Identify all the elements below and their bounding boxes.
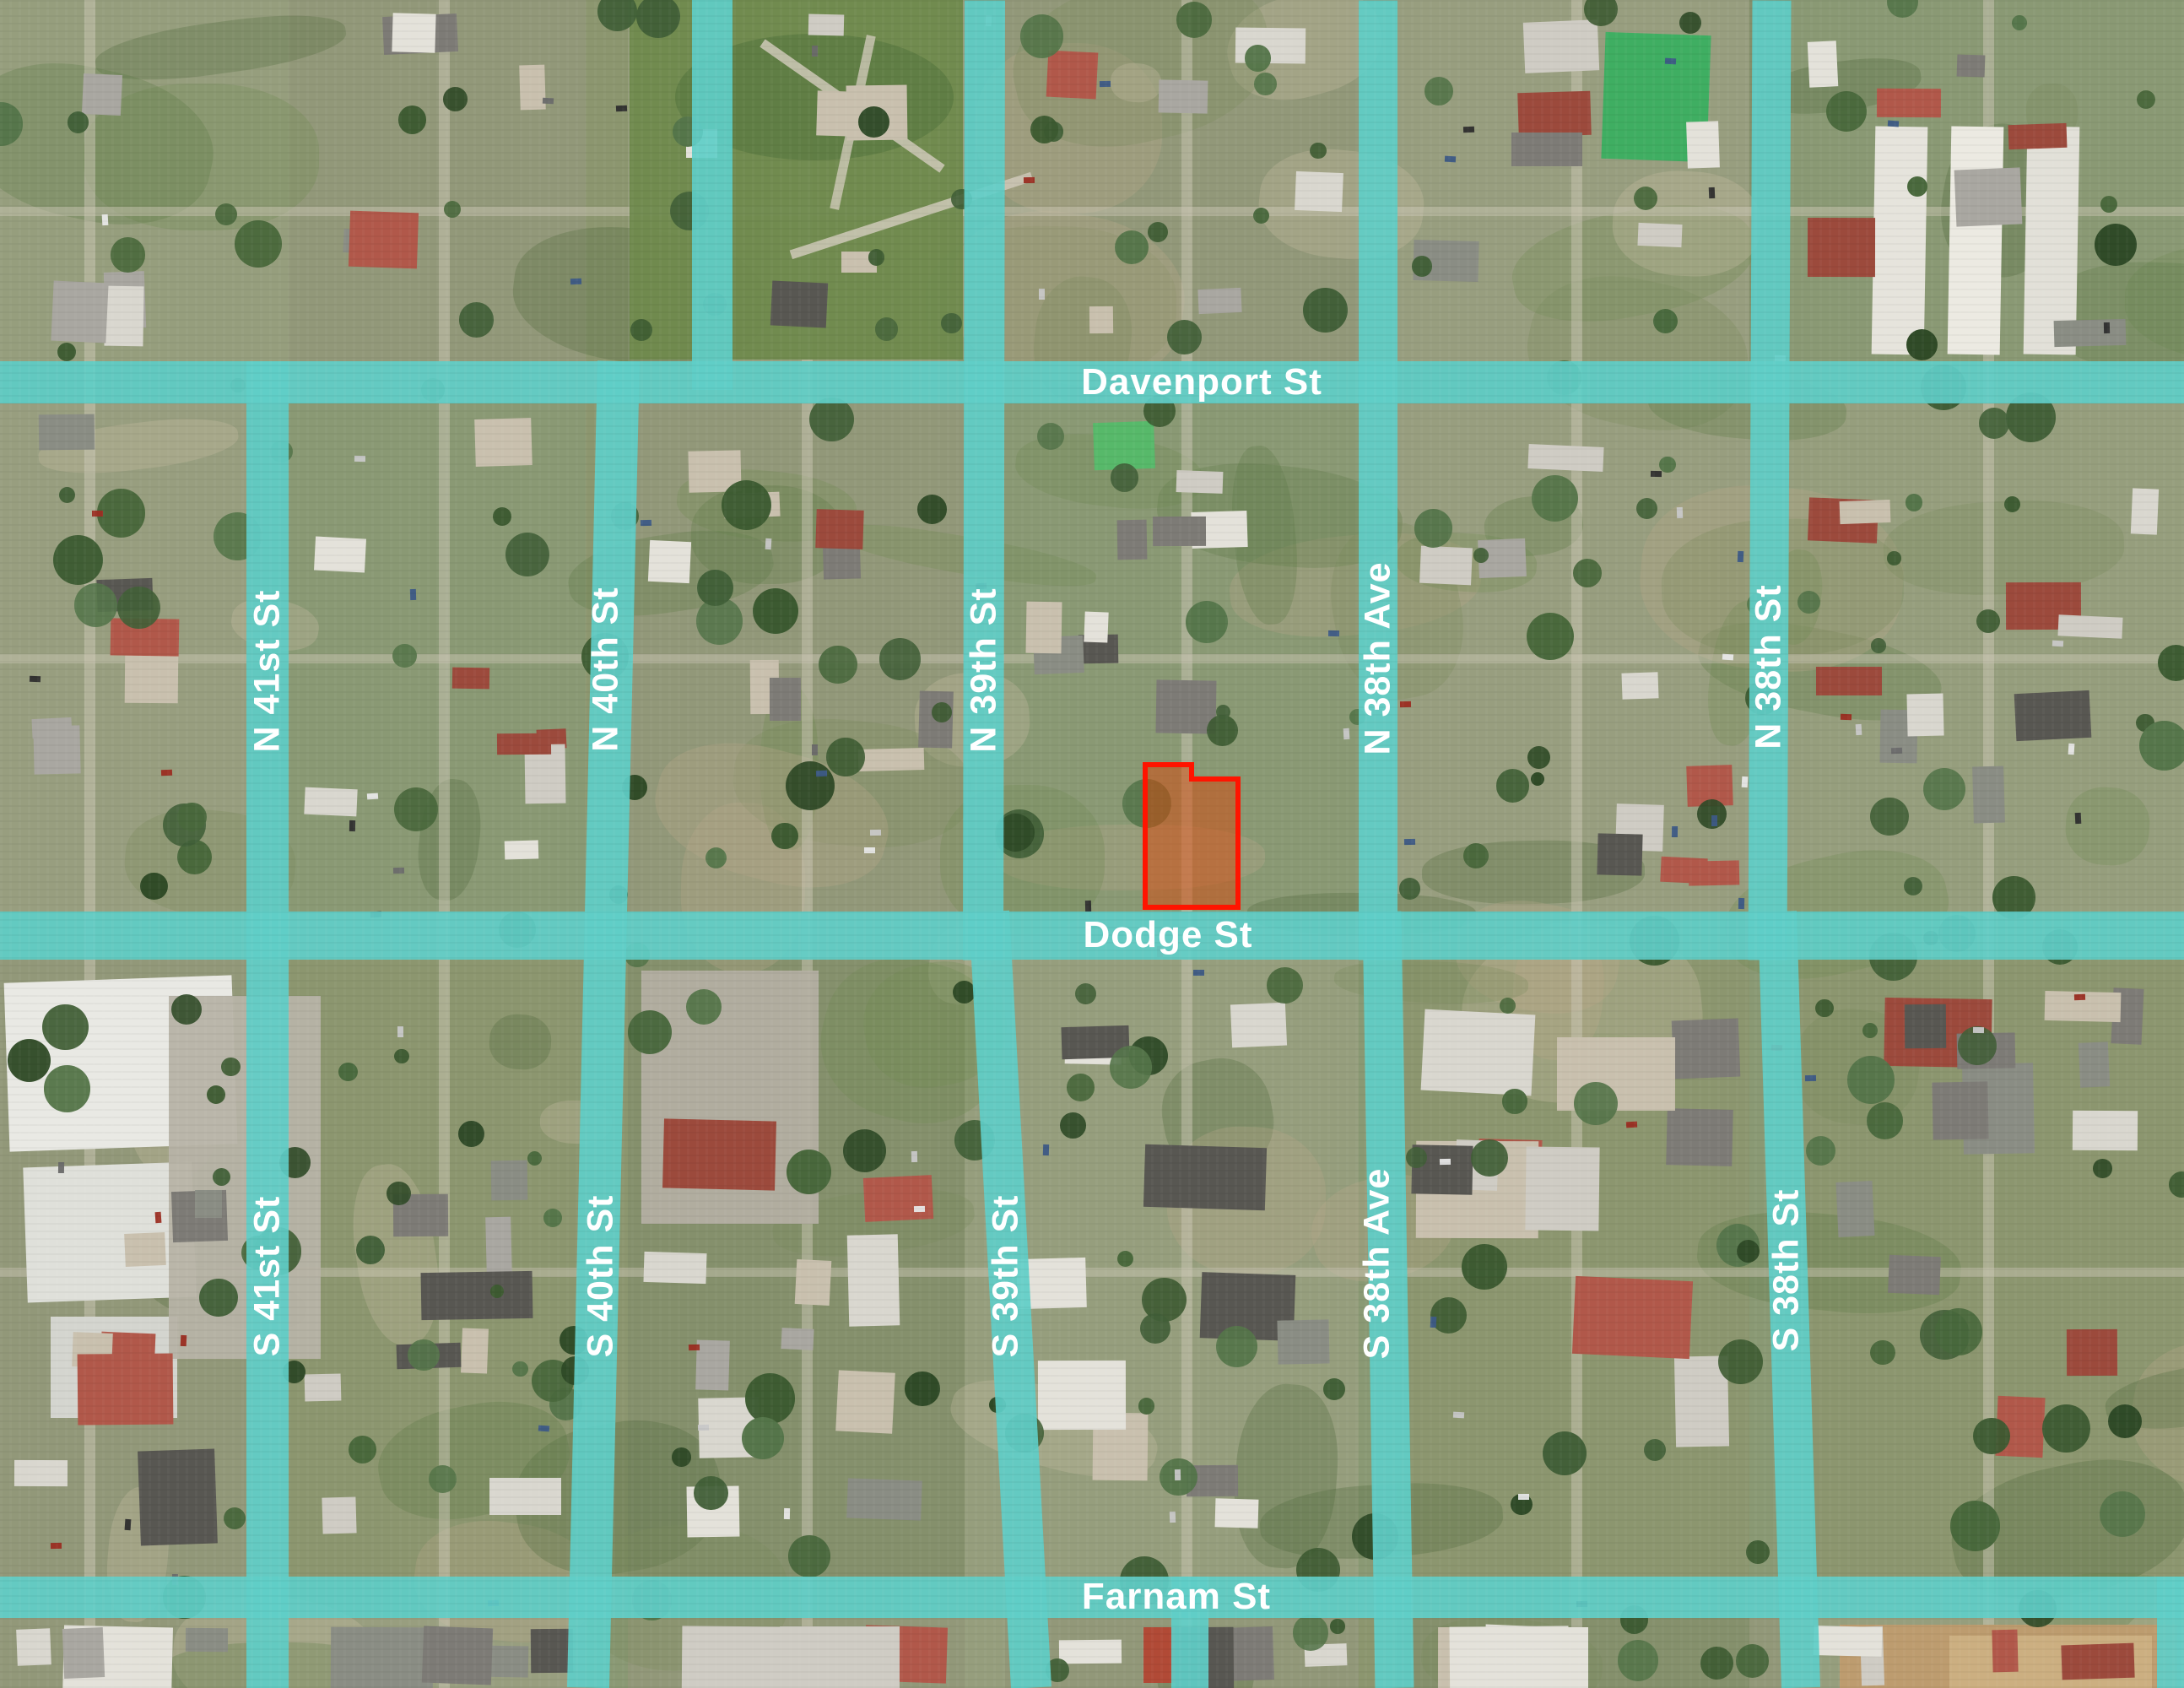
- aerial-map[interactable]: Davenport St Dodge St Farnam St N 41st S…: [0, 0, 2184, 1688]
- parcel-overlay-layer: [0, 0, 2184, 1688]
- highlighted-parcel[interactable]: [1145, 765, 1238, 907]
